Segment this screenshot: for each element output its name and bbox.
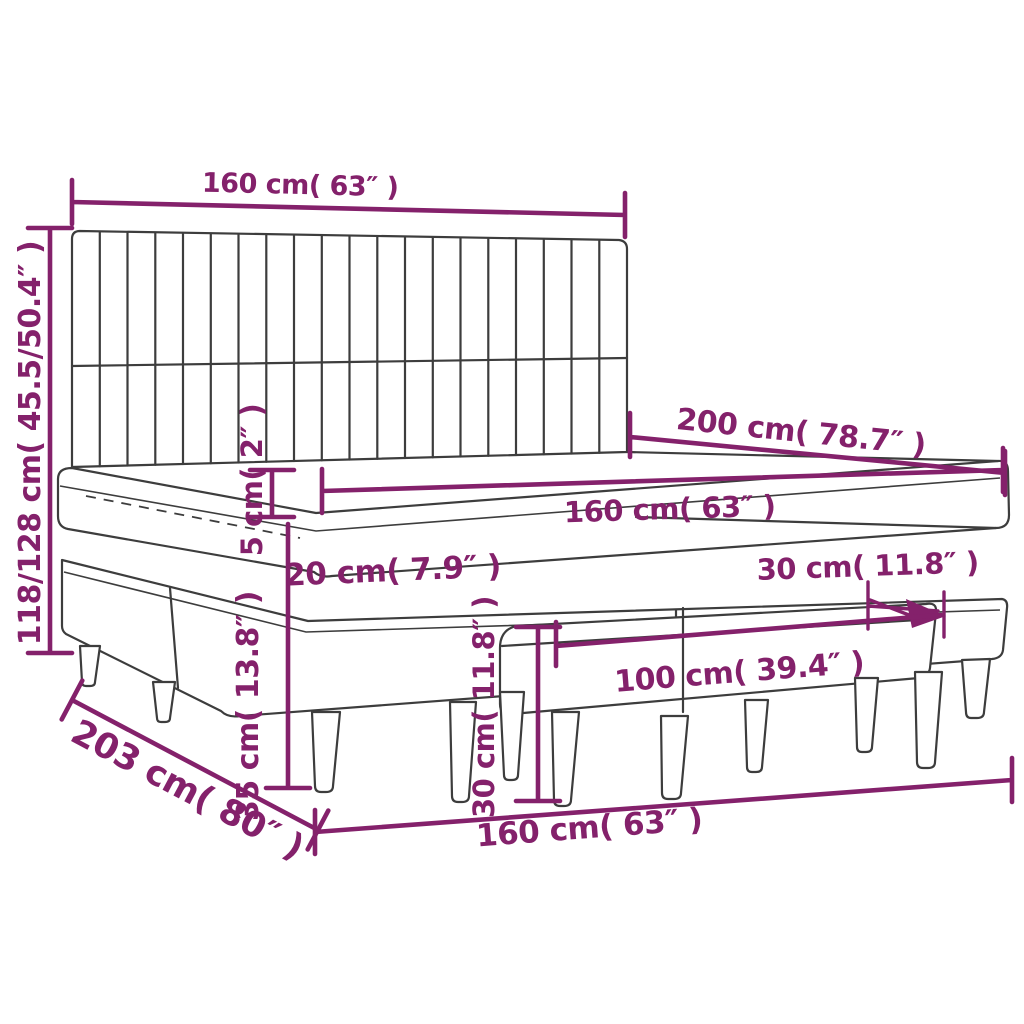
bench-leg bbox=[745, 700, 768, 772]
bench-leg bbox=[552, 712, 579, 806]
dim-topper-thickness-label: 5 cm( 2″ ) bbox=[235, 404, 269, 557]
dim-headboard-width-label: 160 cm( 63″ ) bbox=[202, 168, 399, 204]
bed-drawing bbox=[58, 231, 1009, 806]
dim-overall-height-label: 118/128 cm( 45.5/50.4″ ) bbox=[13, 241, 48, 645]
bed-dimension-diagram: 160 cm( 63″ ) 118/128 cm( 45.5/50.4″ ) 5… bbox=[0, 0, 1024, 1024]
bench-leg bbox=[915, 672, 942, 768]
dim-headboard-width: 160 cm( 63″ ) bbox=[72, 168, 625, 237]
bench-leg bbox=[500, 692, 524, 780]
bed-leg bbox=[312, 712, 340, 792]
dim-bench-height-label: 30 cm( 11.8″ ) bbox=[467, 596, 501, 818]
bed-leg bbox=[962, 659, 990, 718]
bench-leg bbox=[661, 716, 688, 799]
bench-leg bbox=[855, 678, 878, 752]
dim-base-width-label: 160 cm( 63″ ) bbox=[475, 802, 704, 855]
bed-leg bbox=[153, 682, 175, 722]
diagram-canvas: 160 cm( 63″ ) 118/128 cm( 45.5/50.4″ ) 5… bbox=[0, 0, 1024, 1024]
dim-mattress-width-label: 160 cm( 63″ ) bbox=[563, 489, 776, 530]
